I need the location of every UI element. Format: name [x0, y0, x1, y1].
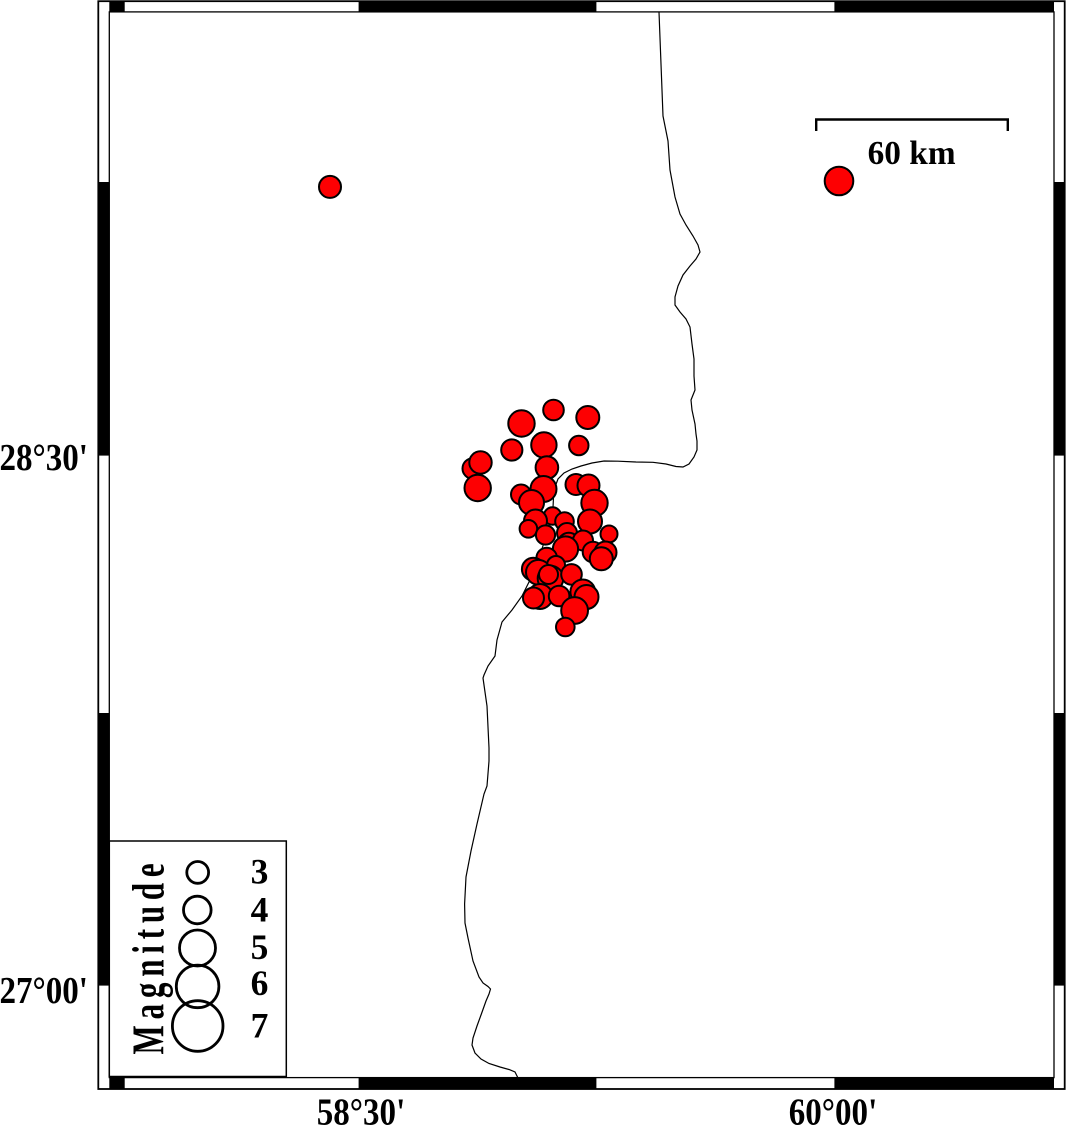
svg-text:60°00': 60°00' [789, 1090, 878, 1127]
svg-text:3: 3 [251, 852, 269, 892]
svg-text:4: 4 [251, 890, 269, 930]
svg-text:5: 5 [251, 927, 269, 967]
svg-text:60 km: 60 km [868, 135, 956, 172]
svg-text:Magnitude: Magnitude [125, 857, 174, 1054]
svg-text:6: 6 [251, 963, 269, 1003]
svg-text:28°30': 28°30' [0, 436, 88, 479]
svg-text:7: 7 [251, 1006, 269, 1046]
svg-text:27°00': 27°00' [0, 969, 88, 1012]
svg-text:58°30': 58°30' [317, 1090, 406, 1127]
